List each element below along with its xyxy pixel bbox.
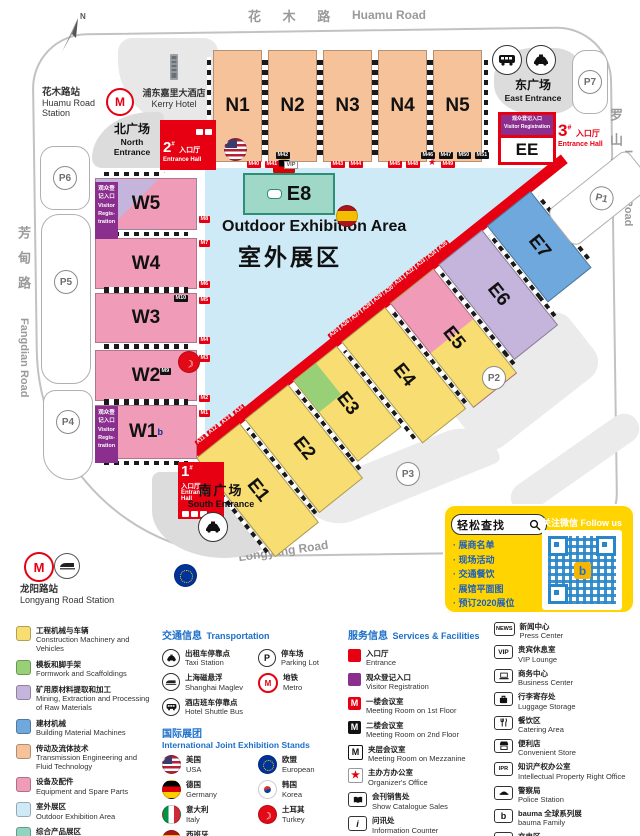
south-plaza-en: South Entrance (166, 499, 276, 509)
hall-w2-label: W2 (132, 365, 161, 387)
parking-p3-label: P3 (396, 462, 420, 486)
gate-label: M5 (199, 297, 210, 304)
visitor-reg-text: 观众登 (95, 185, 118, 193)
visitor-reg-text: 记入口 (95, 193, 118, 201)
catalogue-icon (348, 792, 367, 807)
shuttle-bus-icon (162, 698, 180, 716)
legend-item: 餐饮区Catering Area (494, 716, 639, 734)
legend-item: 观众登记入口Visitor Registration (348, 673, 490, 691)
usa-flag-icon (162, 755, 181, 774)
gate-label: M9 (160, 368, 171, 375)
business-center-icon (494, 669, 513, 683)
legend-item: 便利店Convenient Store (494, 739, 639, 757)
visitor-reg-text: tration (95, 442, 118, 450)
legend-item: 酒店班车停靠点Hotel Shuttle Bus (162, 698, 258, 716)
legend-facilities: NEWS新闻中心Press Center VIP贵宾休息室VIP Lounge … (494, 622, 639, 836)
visitor-reg-text: Visitor Registration (501, 123, 553, 131)
meeting-room-1f-icon: M (348, 697, 361, 710)
press-center-icon: NEWS (494, 622, 515, 636)
kerry-hotel-labels: 浦东嘉里大酒店 Kerry Hotel (134, 86, 214, 109)
compass: N (52, 12, 92, 56)
hall-n3-label: N3 (335, 95, 359, 117)
follow-us-label: 关注微信 Follow us (542, 516, 622, 529)
legend-item: 意大利Italy (162, 805, 258, 824)
luggage-storage-icon (494, 692, 513, 706)
gate-label: M3 (199, 355, 210, 362)
parking-p7-label: P7 (578, 70, 602, 94)
kerry-hotel-icon (166, 52, 182, 82)
gate-vip-label: VIP (284, 161, 298, 169)
wechat-infobox: 轻松查找 关注微信 Follow us b · 展商名单 · 现场活动 · 交通… (443, 504, 635, 614)
legend-categories: 工程机械与车辆Construction Machinery and Vehicl… (16, 626, 152, 836)
turkey-flag-icon (258, 805, 277, 824)
gate-label: M2 (199, 395, 210, 402)
usa-flag-icon (224, 138, 247, 161)
services-title-en: Services & Facilities (392, 631, 479, 641)
visitor-reg-text: 观众登记入口 (501, 115, 553, 123)
taxi-icon (198, 512, 228, 542)
kerry-en: Kerry Hotel (134, 99, 214, 109)
easy-search-label: 轻松查找 (457, 517, 505, 533)
gate-label: M45 (388, 161, 402, 168)
legend-item: M一楼会议室Meeting Room on 1st Floor (348, 697, 490, 715)
maglev-icon (162, 673, 180, 691)
legend-item: ★主办方办公室Organizer's Office (348, 768, 490, 786)
kerry-cn: 浦东嘉里大酒店 (134, 86, 214, 99)
gate-label: M10 (174, 295, 188, 302)
gate-label: M1 (199, 410, 210, 417)
south-plaza-labels: 南广场 South Entrance (166, 480, 276, 509)
meeting-room-mezzanine-icon: M (348, 745, 363, 760)
legend-item: M二楼会议室Meeting Room on 2nd Floor (348, 721, 490, 739)
gate-label: M43 (331, 161, 345, 168)
vip-lounge-icon: VIP (494, 645, 513, 659)
organizer-star-icon: ★ (428, 157, 436, 168)
hall-w4: W4 (95, 238, 197, 289)
legend-item: 室外展区Outdoor Exhibition Area (16, 802, 152, 820)
entrance-2-en: Entrance Hall (163, 157, 213, 163)
visitor-registration-w5: 观众登 记入口 Visitor Regis- tration (95, 182, 118, 239)
visitor-reg-text: Regis- (95, 434, 118, 442)
mini-icon (191, 511, 198, 517)
parking-p4-label: P4 (56, 410, 80, 434)
bauma-family-icon: b (494, 809, 513, 823)
taxi-icon (162, 649, 180, 667)
huamu-station-labels: 花木路站 Huamu Road Station (42, 84, 95, 118)
gate-label: M49 (441, 161, 455, 168)
metro-logo-icon: M (106, 88, 134, 116)
category-swatch (16, 719, 31, 734)
road-fangdian-en: Fangdian Road (18, 318, 30, 397)
hash-sup: # (171, 142, 174, 148)
hall-e6-label: E6 (482, 279, 514, 311)
metro-logo-icon: M (258, 673, 278, 693)
legend-item: 综合产品展区Integrated Products (16, 827, 152, 836)
bullet-item: · 交通餐饮 (453, 567, 515, 582)
hall-w3-label: W3 (132, 307, 161, 329)
east-plaza-labels: 东广场 East Entrance (496, 76, 570, 103)
legend-item: 入口厅Entrance (348, 649, 490, 667)
legend-item: 建材机械Building Material Machines (16, 719, 152, 737)
charging-area-icon (494, 832, 513, 836)
category-swatch (16, 802, 31, 817)
category-swatch (16, 827, 31, 836)
meeting-room-2f-icon: M (348, 721, 361, 734)
category-swatch (16, 777, 31, 792)
legend-services: 服务信息 Services & Facilities 入口厅Entrance 观… (348, 626, 490, 836)
hall-w1-label: W1 (129, 421, 158, 443)
legend-item: 模板和脚手架Formwork and Scaffoldings (16, 660, 152, 678)
legend-item: NEWS新闻中心Press Center (494, 622, 639, 640)
venue-map: 花 木 路 Huamu Road 芳甸路 Fangdian Road 罗山路 L… (0, 0, 640, 836)
legend-item: i问讯处Information Counter (348, 816, 490, 834)
hall-n1-label: N1 (225, 95, 249, 117)
legend-item: 土耳其Turkey (258, 805, 342, 824)
outdoor-title-cn: 室外展区 (238, 238, 342, 272)
organizer-office-icon: ★ (348, 768, 363, 783)
shuttle-bus-icon (492, 45, 522, 75)
gate-label: M41 (265, 161, 279, 168)
east-plaza-en: East Entrance (496, 93, 570, 103)
hall-n2-label: N2 (280, 95, 304, 117)
hall-n5-label: N5 (445, 95, 469, 117)
parking-p5-label: P5 (54, 270, 78, 294)
legend-item: 矿用原材料提取和加工Mining, Extraction and Process… (16, 685, 152, 712)
entrance-3-cn: 入口厅 (576, 129, 600, 138)
legend-item: 美国USA (162, 755, 258, 774)
bullet-item: · 展商名单 (453, 538, 515, 553)
legend-item: 设备及配件Equipment and Spare Parts (16, 777, 152, 795)
legend-item: 上海磁悬浮Shanghai Maglev (162, 673, 258, 691)
parking-p2-label: P2 (482, 366, 506, 390)
hall-n3: N3 (323, 50, 372, 162)
e8-charging-icon (267, 189, 282, 199)
longyang-station-cn: 龙阳路站 (20, 581, 114, 595)
gate-label: M48 (406, 161, 420, 168)
visitor-reg-text: tration (95, 218, 118, 226)
legend-item: 商务中心Business Center (494, 669, 639, 687)
korea-flag-icon (258, 780, 277, 799)
visitor-reg-text: Visitor (95, 202, 118, 210)
parking-icon: P (258, 649, 276, 667)
turkey-flag-icon (178, 351, 200, 373)
compass-n-label: N (80, 12, 86, 21)
visitor-registration-icon (348, 673, 361, 686)
legend-item: 出租车停靠点Taxi Station (162, 649, 258, 667)
legend-item: IPR知识产权办公室Intellectual Property Right Of… (494, 762, 639, 780)
hall-e7-label: E7 (523, 231, 555, 263)
legend-item: 韩国Korea (258, 780, 342, 799)
category-swatch (16, 626, 31, 641)
legend-item: M夹层会议室Meeting Room on Mezzanine (348, 745, 490, 763)
information-icon: i (348, 816, 367, 831)
legend-item: M 地铁Metro (258, 673, 342, 693)
hall-ee: EE (501, 138, 553, 162)
road-huamu-cn: 花 木 路 (248, 6, 339, 25)
visitor-registration-w1: 观众登 记入口 Visitor Regis- tration (95, 406, 118, 463)
maglev-train-icon (54, 553, 80, 579)
legend-item: 传动及流体技术Transmission Engineering and Flui… (16, 744, 152, 771)
visitor-registration-ee: 观众登记入口 Visitor Registration (501, 115, 553, 135)
hall-w4-label: W4 (132, 253, 161, 275)
intl-title-en: International Joint Exhibition Stands (162, 740, 342, 750)
metro-logo-icon: M (24, 552, 54, 582)
parking-p4 (43, 390, 93, 480)
services-title-cn: 服务信息 (348, 631, 388, 642)
hall-e2-label: E2 (288, 433, 320, 465)
entrance-3-en: Entrance Hall (558, 141, 603, 148)
search-icon (529, 519, 541, 531)
parking-p5 (41, 214, 91, 384)
mini-icon (196, 129, 203, 135)
parking-p1-label: P1 (587, 184, 616, 213)
legend-transportation: 交通信息 Transportation 出租车停靠点Taxi Station 上… (162, 626, 342, 836)
legend-intl: 国际展团 International Joint Exhibition Stan… (162, 725, 342, 836)
hall-e4-label: E4 (388, 359, 420, 391)
legend-item: bbauma 全球系列展bauma Family (494, 809, 639, 827)
gate-label: M50 (457, 152, 471, 159)
entrance-hall-2: 2# 入口厅 Entrance Hall (160, 120, 216, 170)
legend-item: P 停车场Parking Lot (258, 649, 342, 667)
visitor-reg-text: 记入口 (95, 417, 118, 425)
visitor-reg-text: Visitor (95, 426, 118, 434)
mini-icon (205, 129, 212, 135)
huamu-station-cn: 花木路站 (42, 84, 95, 98)
hall-e8: E8 (243, 173, 335, 215)
italy-flag-icon (162, 805, 181, 824)
north-arrow-icon (52, 12, 92, 56)
eu-flag-icon (258, 755, 277, 774)
gate-label: M51 (475, 152, 489, 159)
hall-n4-label: N4 (390, 95, 414, 117)
hall-n2: N2 (268, 50, 317, 162)
parking-p6-label: P6 (53, 166, 77, 190)
legend-item: 工程机械与车辆Construction Machinery and Vehicl… (16, 626, 152, 653)
visitor-reg-text: 观众登 (95, 409, 118, 417)
mini-icon (164, 172, 171, 178)
entrance-hall-3-label: 3# 入口厅 Entrance Hall (558, 122, 603, 148)
hall-n5: N5 (433, 50, 482, 162)
easy-search-pill: 轻松查找 (451, 514, 547, 535)
category-swatch (16, 685, 31, 700)
longyang-station-en: Longyang Road Station (20, 595, 114, 605)
mini-icon (173, 172, 180, 178)
spain-flag-icon (162, 830, 181, 836)
hall-e5-label: E5 (438, 322, 470, 354)
bullet-item: · 现场活动 (453, 553, 515, 568)
north-plaza-en1: North (100, 137, 164, 147)
police-station-icon (494, 786, 513, 800)
category-swatch (16, 744, 31, 759)
gate-label: M8 (199, 216, 210, 223)
eu-flag-icon (174, 564, 197, 587)
road-huamu-en: Huamu Road (352, 8, 426, 22)
hash-sup: # (189, 466, 192, 472)
entrance-2-cn: 入口厅 (179, 147, 200, 154)
transport-title-cn: 交通信息 (162, 631, 202, 642)
gate-label: M7 (199, 240, 210, 247)
south-plaza-cn: 南广场 (166, 480, 276, 499)
hall-ee-label: EE (516, 140, 539, 160)
bullet-item: · 预订2020展位 (453, 596, 515, 611)
legend-item: 警察局Police Station (494, 786, 639, 804)
north-plaza-en2: Entrance (100, 147, 164, 157)
spain-flag-icon (336, 205, 358, 227)
wechat-qr-code: b (542, 530, 622, 610)
transport-title-en: Transportation (206, 631, 269, 641)
legend-item: 行李寄存处Luggage Storage (494, 692, 639, 710)
east-plaza-cn: 东广场 (496, 76, 570, 93)
north-plaza-labels: 北广场 North Entrance (100, 120, 164, 157)
germany-flag-icon (162, 780, 181, 799)
entrance-icon (348, 649, 361, 662)
mini-icon (182, 511, 189, 517)
bullet-item: · 展馆平面图 (453, 582, 515, 597)
legend-item: 西班牙Spain (162, 830, 258, 836)
road-fangdian-cn: 芳甸路 (14, 226, 33, 301)
catering-icon (494, 716, 513, 730)
outdoor-title-en: Outdoor Exhibition Area (222, 218, 406, 236)
legend-item: 欧盟European (258, 755, 342, 774)
bauma-logo: b (574, 562, 591, 579)
ipr-office-icon: IPR (494, 762, 513, 776)
gate-label: M40 (247, 161, 261, 168)
visitor-reg-text: Regis- (95, 210, 118, 218)
hall-n4: N4 (378, 50, 427, 162)
mini-icon (182, 172, 189, 178)
legend-item: 德国Germany (162, 780, 258, 799)
convenience-store-icon (494, 739, 513, 753)
hall-w1-sup: b (158, 427, 164, 437)
gate-label: M47 (439, 152, 453, 159)
category-swatch (16, 660, 31, 675)
taxi-icon (526, 45, 556, 75)
gate-label: M4 (199, 337, 210, 344)
hall-e8-label: E8 (287, 183, 311, 206)
legend-item: 充电区Charging Area (494, 832, 639, 836)
infobox-bullets: · 展商名单 · 现场活动 · 交通餐饮 · 展馆平面图 · 预订2020展位 (453, 538, 515, 611)
gate-label: M6 (199, 281, 210, 288)
intl-title-cn: 国际展团 (162, 725, 342, 740)
gate-label: M44 (349, 161, 363, 168)
gate-label: M42 (276, 152, 290, 159)
north-plaza-cn: 北广场 (100, 120, 164, 137)
legend-item: VIP贵宾休息室VIP Lounge (494, 645, 639, 663)
huamu-station-en2: Station (42, 108, 95, 118)
hash-sup: # (567, 125, 571, 132)
hall-w5-label: W5 (132, 193, 161, 215)
huamu-station-en1: Huamu Road (42, 98, 95, 108)
legend-item: 会刊销售处Show Catalogue Sales (348, 792, 490, 810)
longyang-station-labels: 龙阳路站 Longyang Road Station (20, 581, 114, 605)
